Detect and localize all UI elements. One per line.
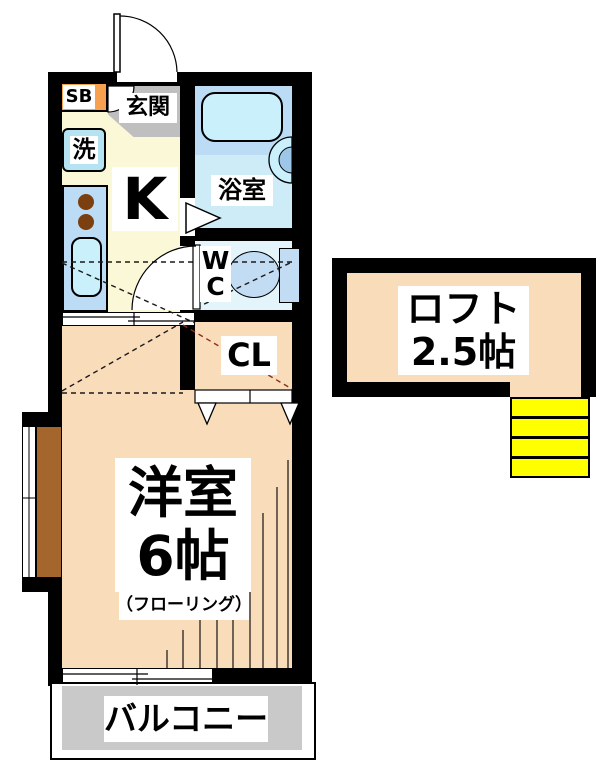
wc-text-bottom: C <box>206 274 224 300</box>
kitchen-label: K <box>112 167 178 231</box>
balcony-text: バルコニー <box>104 701 268 737</box>
flooring-note-label: （フローリング） <box>119 591 249 620</box>
shoe-box-label: SB <box>63 85 95 109</box>
balcony-label: バルコニー <box>104 696 268 742</box>
western-room-size: 6帖 <box>136 525 229 588</box>
flooring-note-text: （フローリング） <box>116 596 252 614</box>
bathroom-text: 浴室 <box>218 178 266 204</box>
closet-label: CL <box>221 336 277 375</box>
genkan-label: 玄関 <box>119 93 177 123</box>
wc-door-leaf <box>193 245 200 309</box>
closet-door-triangle <box>281 403 299 424</box>
bathroom-label: 浴室 <box>211 175 273 206</box>
washer-text: 洗 <box>73 138 96 163</box>
sliding-door-lines <box>62 312 195 326</box>
floorplan-canvas: SB 洗 玄関 K 浴室 W C CL 洋室 6帖 （フローリング） ロフト 2… <box>0 0 614 779</box>
balcony-window-lines <box>62 669 213 685</box>
closet-door-band <box>195 390 292 403</box>
shoe-box-text: SB <box>66 87 93 106</box>
loft-size: 2.5帖 <box>411 331 516 374</box>
floorplan-overlay <box>0 0 614 779</box>
entrance-door-leaf <box>114 14 120 72</box>
bath-door-triangle <box>186 203 220 233</box>
loft-name: ロフト <box>406 288 520 331</box>
washer-label: 洗 <box>70 136 98 164</box>
wc-text-top: W <box>202 248 230 274</box>
wc-label: W C <box>200 246 231 302</box>
bay-window-lines <box>23 426 35 578</box>
wc-door-swing-fill <box>132 246 196 310</box>
western-room-label: 洋室 6帖 <box>115 458 251 592</box>
loft-label: ロフト 2.5帖 <box>398 286 529 375</box>
entrance-door-arc <box>120 16 177 72</box>
closet-door-triangle <box>198 403 216 424</box>
western-room-name: 洋室 <box>128 462 238 525</box>
kitchen-text: K <box>123 168 168 231</box>
genkan-text: 玄関 <box>126 96 170 120</box>
closet-text: CL <box>227 338 271 373</box>
